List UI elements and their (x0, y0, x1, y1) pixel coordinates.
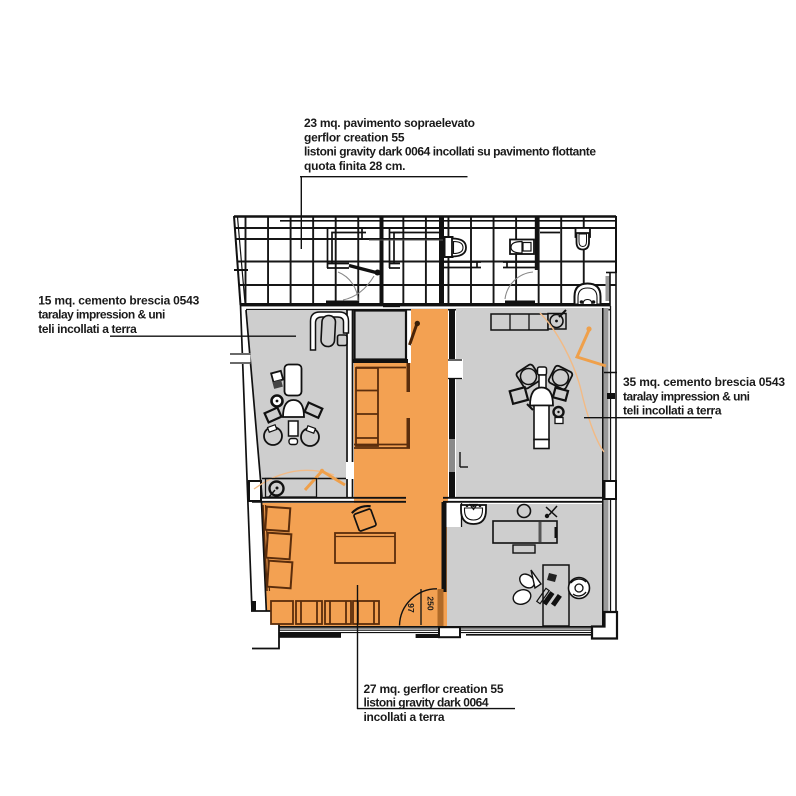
svg-text:quota finita 28 cm.: quota finita 28 cm. (304, 159, 405, 173)
svg-text:listoni gravity dark 0064: listoni gravity dark 0064 (364, 696, 489, 710)
svg-text:taralay impression & uni: taralay impression & uni (623, 390, 750, 404)
svg-text:teli incollati a terra: teli incollati a terra (38, 322, 137, 336)
svg-text:incollati a terra: incollati a terra (364, 710, 445, 724)
svg-text:23 mq. pavimento sopraelevato: 23 mq. pavimento sopraelevato (304, 116, 475, 130)
svg-text:250: 250 (426, 596, 436, 610)
svg-text:listoni gravity dark 0064 inco: listoni gravity dark 0064 incollati su p… (304, 145, 596, 159)
svg-text:gerflor creation 55: gerflor creation 55 (304, 131, 405, 145)
svg-text:97: 97 (406, 603, 416, 613)
svg-text:15 mq. cemento brescia 0543: 15 mq. cemento brescia 0543 (38, 294, 199, 308)
svg-text:27 mq. gerflor creation 55: 27 mq. gerflor creation 55 (364, 682, 504, 696)
svg-text:35 mq. cemento brescia 0543: 35 mq. cemento brescia 0543 (623, 375, 785, 389)
svg-text:teli incollati a terra: teli incollati a terra (623, 404, 722, 418)
svg-text:taralay impression & uni: taralay impression & uni (38, 308, 165, 322)
